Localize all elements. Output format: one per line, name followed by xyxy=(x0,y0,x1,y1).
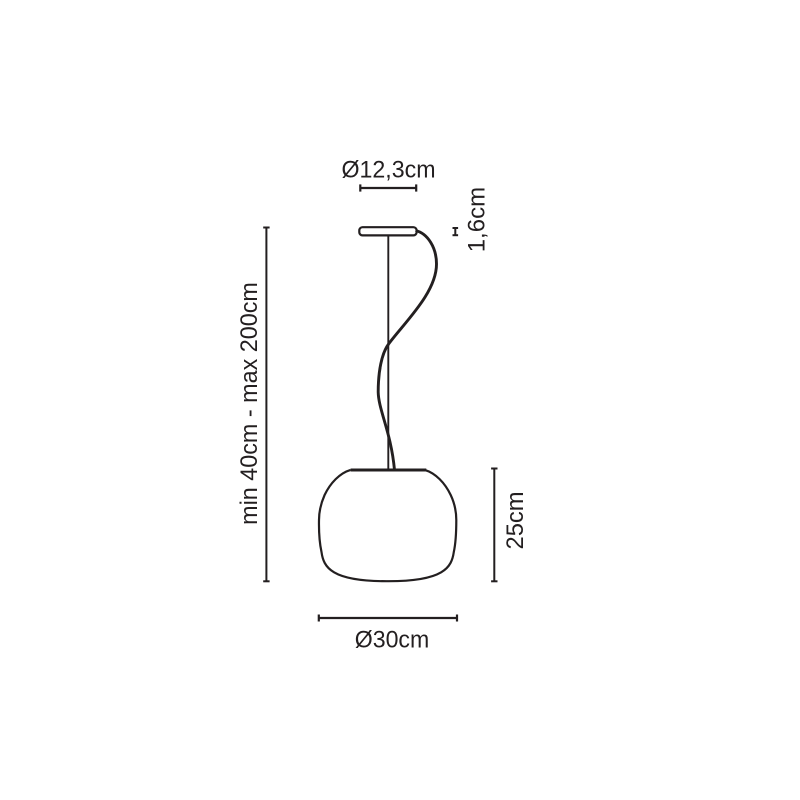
svg-text:1,6cm: 1,6cm xyxy=(464,187,491,252)
svg-text:Ø12,3cm: Ø12,3cm xyxy=(342,156,436,183)
svg-text:Ø30cm: Ø30cm xyxy=(355,627,430,654)
svg-text:min 40cm - max 200cm: min 40cm - max 200cm xyxy=(236,282,263,525)
svg-text:25cm: 25cm xyxy=(502,492,529,550)
